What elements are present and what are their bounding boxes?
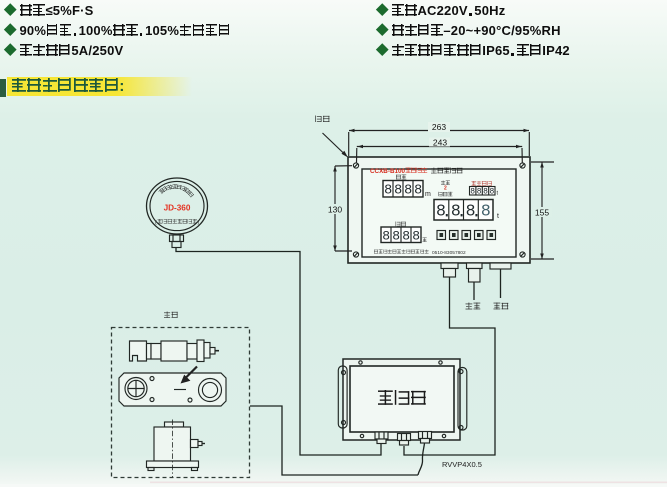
svg-text:8: 8 [470, 188, 475, 197]
svg-text:RVVP4X0.5: RVVP4X0.5 [442, 460, 482, 469]
svg-text:8: 8 [392, 229, 400, 244]
svg-text:8: 8 [489, 188, 494, 197]
svg-text:8: 8 [481, 202, 491, 221]
svg-text:t: t [497, 213, 499, 220]
svg-text:155: 155 [535, 208, 549, 218]
svg-text:243: 243 [433, 138, 447, 148]
svg-text:JD-360: JD-360 [164, 204, 191, 213]
svg-text:8: 8 [402, 229, 410, 244]
svg-text:2: 2 [444, 186, 447, 192]
svg-text:8: 8 [466, 202, 476, 221]
svg-text:8: 8 [394, 184, 402, 199]
svg-text:8: 8 [436, 202, 446, 221]
svg-text:m: m [425, 191, 431, 198]
svg-text:8: 8 [404, 184, 412, 199]
svg-text:8: 8 [451, 202, 461, 221]
svg-text:8: 8 [412, 229, 420, 244]
svg-text:8: 8 [483, 188, 488, 197]
svg-text:8: 8 [382, 229, 390, 244]
svg-text:0510-83057802: 0510-83057802 [432, 250, 466, 256]
svg-text:130: 130 [328, 205, 342, 215]
svg-text:8: 8 [414, 184, 422, 199]
svg-text:263: 263 [432, 122, 446, 132]
svg-text:CCXB-B100: CCXB-B100 [370, 168, 405, 175]
svg-text:8: 8 [477, 188, 482, 197]
svg-text:8: 8 [384, 184, 392, 199]
